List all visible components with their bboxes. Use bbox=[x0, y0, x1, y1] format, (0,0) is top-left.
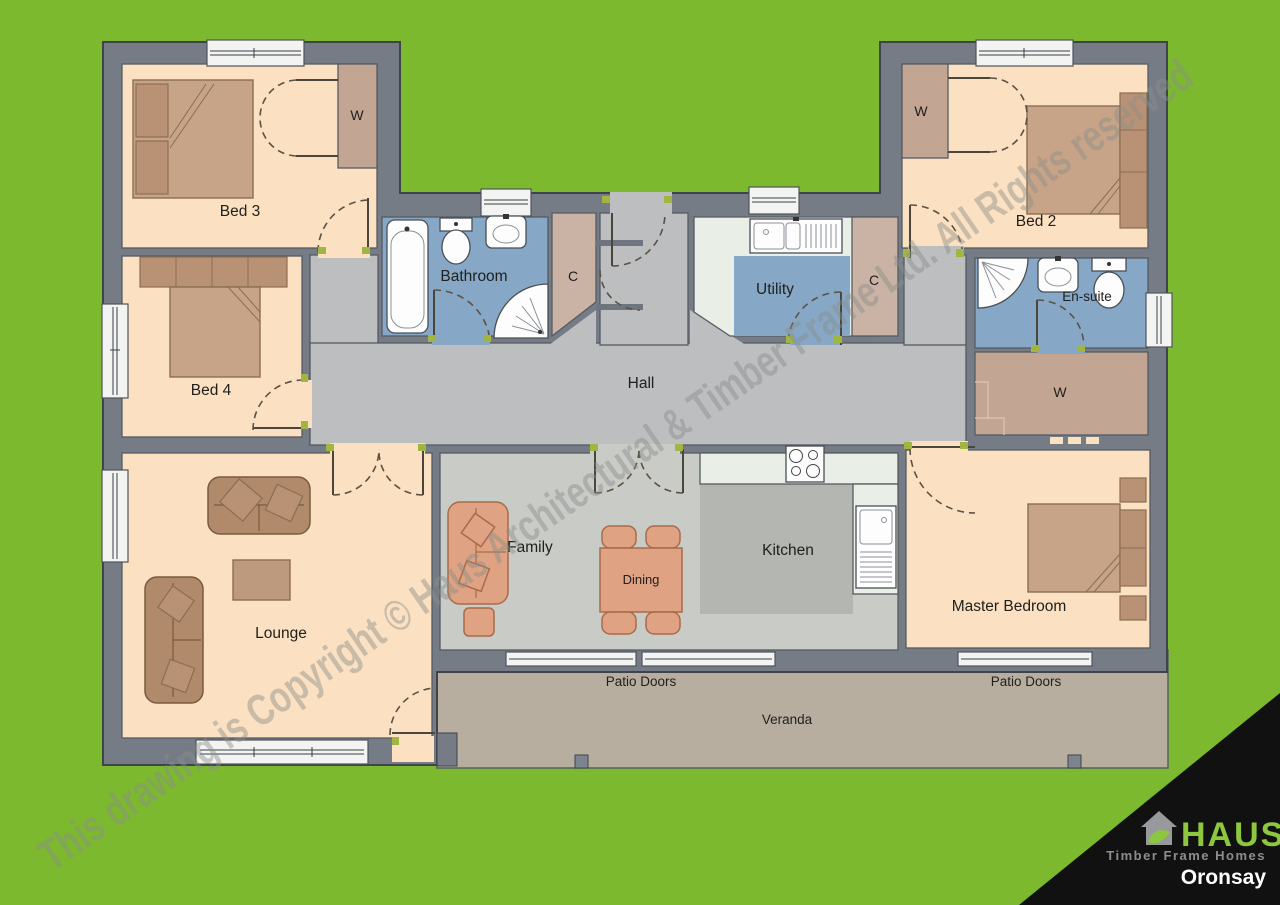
dining-chair bbox=[646, 526, 680, 548]
window-lounge-west bbox=[102, 470, 128, 562]
window-bed4-west bbox=[102, 304, 128, 398]
basin-tap bbox=[503, 214, 509, 219]
kitchen-sink-unit bbox=[856, 506, 896, 588]
sink-tap bbox=[793, 217, 799, 221]
bedside-table bbox=[1120, 478, 1146, 502]
bathtub-tap bbox=[405, 227, 410, 232]
bathroom-label: Bathroom bbox=[440, 268, 507, 285]
window-bed2-north bbox=[976, 40, 1073, 66]
bed4-door-opening bbox=[300, 380, 312, 428]
wardrobe-label: W bbox=[1053, 384, 1067, 400]
master-label: Master Bedroom bbox=[952, 598, 1067, 615]
patio-doors-label: Patio Doors bbox=[991, 674, 1062, 689]
basin-tap bbox=[1055, 256, 1061, 261]
cupboard-label: C bbox=[568, 268, 578, 284]
basin bbox=[1038, 258, 1078, 292]
lounge-label: Lounge bbox=[255, 625, 307, 642]
dining-chair bbox=[646, 612, 680, 634]
utility-fixtures bbox=[750, 217, 842, 253]
veranda-post bbox=[575, 755, 588, 768]
hall-label: Hall bbox=[628, 375, 655, 392]
bathroom-door-opening bbox=[432, 334, 490, 345]
bed3-label: Bed 3 bbox=[220, 203, 261, 220]
bed3-furniture bbox=[133, 80, 253, 198]
plan-name: Oronsay bbox=[1181, 866, 1267, 889]
coffee-table bbox=[233, 560, 290, 600]
drainer-lines bbox=[860, 552, 892, 582]
bedside-table bbox=[1120, 596, 1146, 620]
shower-drain bbox=[538, 330, 542, 334]
toilet-flush bbox=[454, 222, 458, 226]
utility-label: Utility bbox=[756, 281, 794, 298]
window-bed3-north bbox=[207, 40, 304, 66]
window-bathroom-north bbox=[481, 189, 531, 216]
window-ensuite-east bbox=[1146, 293, 1172, 347]
floor-plan-drawing: Bed 3 W Bathroom C Hall Utility C W Bed … bbox=[0, 0, 1280, 905]
wardrobe-slider bbox=[1068, 437, 1081, 444]
window-utility-north bbox=[749, 187, 799, 214]
entrance-opening bbox=[610, 192, 672, 215]
veranda-post bbox=[1068, 755, 1081, 768]
veranda-label: Veranda bbox=[762, 712, 813, 727]
dining-chair bbox=[602, 526, 636, 548]
dining-label: Dining bbox=[623, 572, 660, 587]
wall-corner-block bbox=[437, 733, 457, 766]
hall-vestibule bbox=[600, 213, 688, 345]
wardrobe-slider bbox=[1086, 437, 1099, 444]
vestibule-stub-wall bbox=[596, 240, 643, 246]
bed2-label: Bed 2 bbox=[1016, 213, 1057, 230]
patio-doors-label: Patio Doors bbox=[606, 674, 677, 689]
wardrobe-label: W bbox=[350, 107, 364, 123]
floor-plan-sheet: Bed 3 W Bathroom C Hall Utility C W Bed … bbox=[0, 0, 1280, 905]
bed4-label: Bed 4 bbox=[191, 382, 232, 399]
toilet-bowl bbox=[442, 230, 470, 264]
kitchen-label: Kitchen bbox=[762, 542, 814, 559]
drainer-lines bbox=[806, 224, 836, 248]
footstool bbox=[464, 608, 494, 636]
lounge-doors-opening bbox=[330, 443, 425, 455]
utility-sink-unit bbox=[750, 219, 842, 253]
toilet-flush bbox=[1107, 262, 1111, 266]
dining-chair bbox=[602, 612, 636, 634]
wardrobe-label: W bbox=[914, 103, 928, 119]
ensuite-label: En-suite bbox=[1062, 289, 1112, 304]
brand-tagline: Timber Frame Homes bbox=[1106, 848, 1266, 863]
wardrobe-slider bbox=[1050, 437, 1063, 444]
